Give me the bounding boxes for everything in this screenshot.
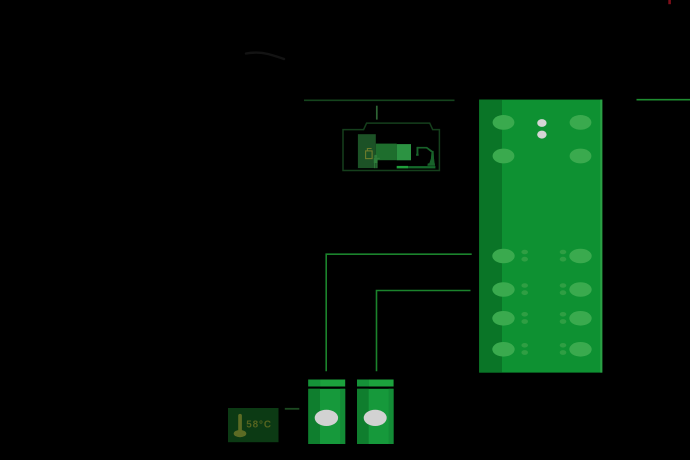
svg-text:58°C: 58°C bbox=[246, 419, 272, 430]
